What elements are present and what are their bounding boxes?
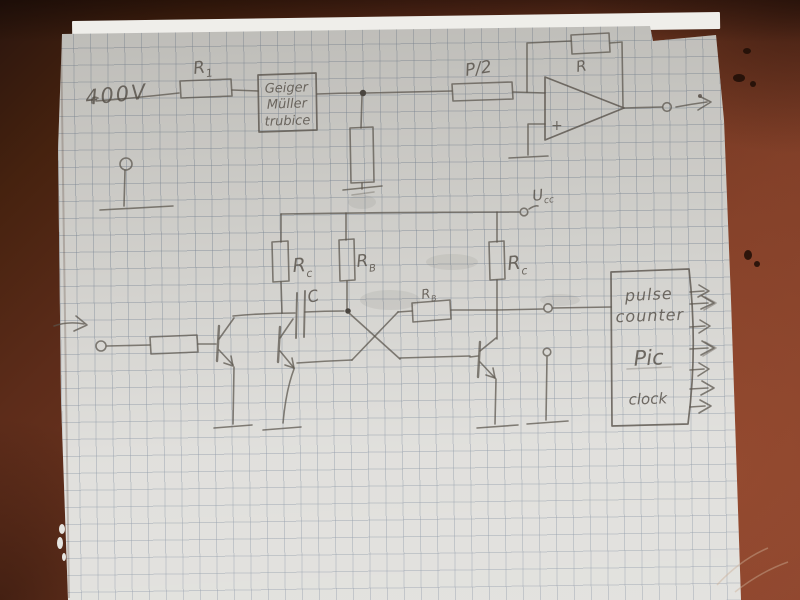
ground-symbol (477, 425, 518, 428)
wire (107, 345, 150, 346)
r1-label-sub: 1 (205, 66, 214, 80)
wire-output (624, 107, 662, 108)
ground-symbol (509, 156, 548, 158)
ground-symbol (263, 427, 301, 430)
transistor-q1-bar (217, 326, 219, 361)
transistor-q2-collector (280, 319, 293, 338)
pencil-drawing: 400V R1 Geiger Müller trubice P/2 R + Uc… (0, 0, 800, 600)
table-specks (698, 48, 760, 267)
wire (317, 93, 360, 94)
divider-label: P/2 (464, 57, 494, 81)
smudge (348, 195, 376, 209)
rc-left-main: R (292, 254, 307, 277)
capacitor-plate (296, 293, 297, 338)
counter-line4: clock (628, 389, 668, 408)
tube-line2: Müller (267, 96, 309, 112)
ground-symbol (527, 421, 568, 424)
wire (497, 309, 543, 310)
wire (553, 307, 611, 308)
speck (733, 74, 745, 82)
input-arrow-shaft (54, 323, 84, 326)
wire (495, 379, 496, 424)
ucc-terminal (520, 208, 528, 216)
counter-arrow (690, 285, 709, 297)
feedback-resistor-box (571, 33, 610, 54)
tube-line3: trubice (264, 113, 310, 130)
counter-arrow-echo (703, 342, 716, 356)
counter-output-arrows (690, 285, 716, 413)
wire (232, 90, 258, 91)
transistor-q2-bar (278, 327, 280, 362)
wire (361, 96, 362, 128)
fray (62, 553, 66, 561)
scratch (735, 562, 788, 592)
wire (513, 92, 545, 93)
paper-edge-shadow (61, 36, 69, 598)
rb-mid-sub: B (430, 294, 437, 304)
ucc-label: Ucc (531, 184, 555, 208)
input-terminal (96, 341, 106, 351)
wire (297, 360, 352, 363)
ground-symbol (214, 425, 252, 428)
speck (743, 48, 751, 54)
signal-terminal (544, 304, 552, 312)
wire (400, 356, 470, 358)
rc-right-sub: c (521, 264, 528, 278)
wire (233, 367, 234, 424)
handwritten-labels: 400V R1 Geiger Müller trubice P/2 R + Uc… (84, 56, 685, 408)
input-resistor-box (150, 335, 198, 354)
rb-left-main: R (355, 251, 369, 272)
wire (283, 369, 294, 423)
counter-label: pulse counter Pic clock (615, 284, 685, 409)
transistor-q1-collector (219, 318, 234, 339)
resistor-r1-box (180, 79, 232, 98)
resistor-box (350, 127, 374, 183)
rc-left-sub: c (306, 267, 313, 280)
wire (398, 311, 412, 312)
resistor-rc-left-box (272, 241, 289, 282)
ucc-hook (529, 206, 538, 209)
speck (744, 250, 752, 260)
photo-scene: 400V R1 Geiger Müller trubice P/2 R + Uc… (0, 0, 800, 600)
ground-symbol (352, 192, 374, 195)
r1-label: R1 (192, 57, 214, 82)
rb-left-label: RB (355, 250, 376, 276)
wire (305, 311, 344, 312)
transistor-q3-bar (478, 342, 480, 377)
rb-left-sub: B (369, 263, 377, 275)
rc-left-label: Rc (292, 254, 313, 281)
wire-noninverting (528, 124, 545, 155)
wire (124, 170, 125, 206)
speck (750, 81, 756, 87)
rc-right-label: Rc (506, 251, 528, 279)
wire (470, 356, 478, 357)
circuit-strokes (54, 33, 716, 430)
rc-right-main: R (506, 252, 521, 275)
ucc-label-sub: cc (543, 195, 554, 206)
table-scratches (717, 548, 788, 592)
counter-line2: counter (615, 305, 685, 326)
wire (366, 91, 452, 93)
scratch (717, 548, 768, 585)
speck (754, 261, 760, 267)
smudge (426, 254, 478, 270)
cross-wire (352, 312, 398, 360)
capacitor-plate (304, 291, 305, 337)
supply-voltage-label: 400V (84, 80, 149, 110)
ground-symbol (100, 206, 173, 210)
transistor-q3-collector (480, 338, 496, 351)
paper-frays (57, 524, 66, 561)
fray (57, 537, 63, 549)
capacitor-label: C (305, 286, 321, 307)
ucc-label-main: U (531, 186, 544, 205)
counter-arrow (690, 381, 714, 395)
ucc-rail (281, 212, 519, 214)
wire (281, 282, 282, 313)
counter-arrow (690, 400, 711, 413)
output-terminal (663, 103, 672, 112)
tube-line1: Geiger (264, 80, 309, 97)
counter-line3: Pic (633, 345, 665, 371)
feedback-resistor-label: R (575, 56, 588, 76)
geiger-tube-label: Geiger Müller trubice (263, 80, 311, 130)
wire-feedback (610, 42, 623, 107)
resistor-rb-left-box (339, 239, 355, 281)
fray (59, 524, 65, 534)
resistor-rc-right-box (489, 241, 505, 280)
output-arrow-shaft (676, 102, 707, 107)
terminal-circle (120, 158, 132, 170)
divider-p2-box (452, 82, 513, 101)
ground-terminal (543, 348, 551, 356)
wire (233, 313, 295, 316)
wire (546, 357, 547, 420)
counter-line1: pulse (623, 284, 673, 306)
opamp-plus-label: + (551, 118, 563, 134)
smudge (360, 290, 420, 310)
